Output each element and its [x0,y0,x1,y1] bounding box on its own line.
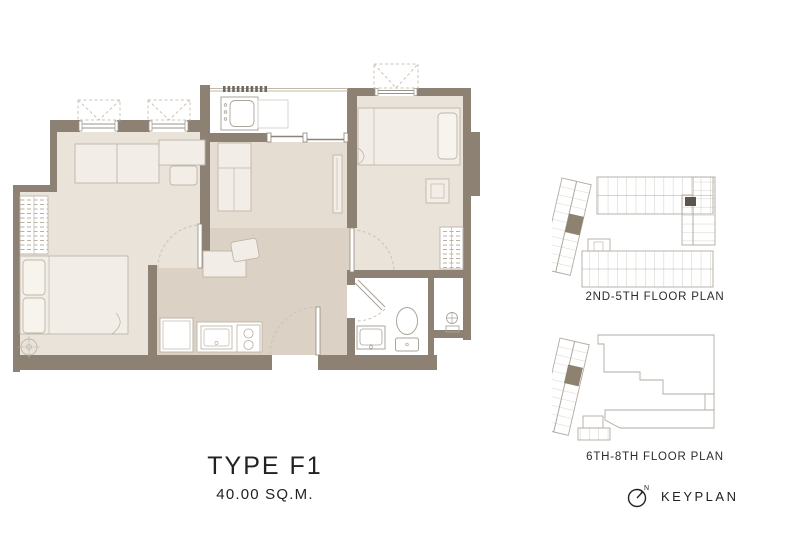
plan-title-block: TYPE F1 40.00 SQ.M. [155,452,375,503]
awning-symbol-3 [374,64,418,88]
plan-type-title: TYPE F1 [155,452,375,481]
keyplan-6th-8th-label: 6TH-8TH FLOOR PLAN [550,451,760,463]
kp1-core [685,197,696,206]
kitchen-sink [201,326,232,349]
awning-symbol-2 [148,100,190,120]
keyplan-2nd-5th [552,165,722,300]
wardrobe-hatched-1 [20,196,48,254]
kp2-upper-slab [598,335,714,394]
window-3 [375,88,417,96]
nightstand [426,179,449,203]
kp1-south-wing [582,239,713,287]
stove [237,325,260,352]
window-2 [149,120,188,132]
compass-icon: N [626,482,652,510]
sofa [75,144,159,183]
fridge [160,318,193,352]
awning-symbol-1 [78,100,120,120]
keyplan-label: KEYPLAN [661,489,738,504]
chair-2 [230,238,259,262]
unit-floor-plan [0,0,500,400]
column [471,132,480,196]
wash-basin [357,326,385,350]
chair-1 [170,166,197,185]
washing-machine [221,97,258,130]
compass-north-label: N [644,485,649,492]
toilet [396,308,419,352]
window-1 [79,120,118,132]
kp2-connector [705,394,714,410]
keyplan-6th-8th [552,330,722,450]
floor-plan-page: 2ND-5TH FLOOR PLAN 6TH-8TH FLOOR PLAN N [0,0,800,533]
plan-area-label: 40.00 SQ.M. [155,486,375,503]
kp2-lower-slab [605,410,714,428]
keyplan-legend: N KEYPLAN [626,482,738,510]
master-bed [20,256,128,334]
wardrobe-hatched-2 [440,227,463,269]
bed-2 [358,108,460,165]
wardrobe-2 [218,143,251,211]
keyplan-2nd-5th-label: 2ND-5TH FLOOR PLAN [550,291,760,303]
desk-1 [159,140,205,165]
tv-console [333,155,342,213]
